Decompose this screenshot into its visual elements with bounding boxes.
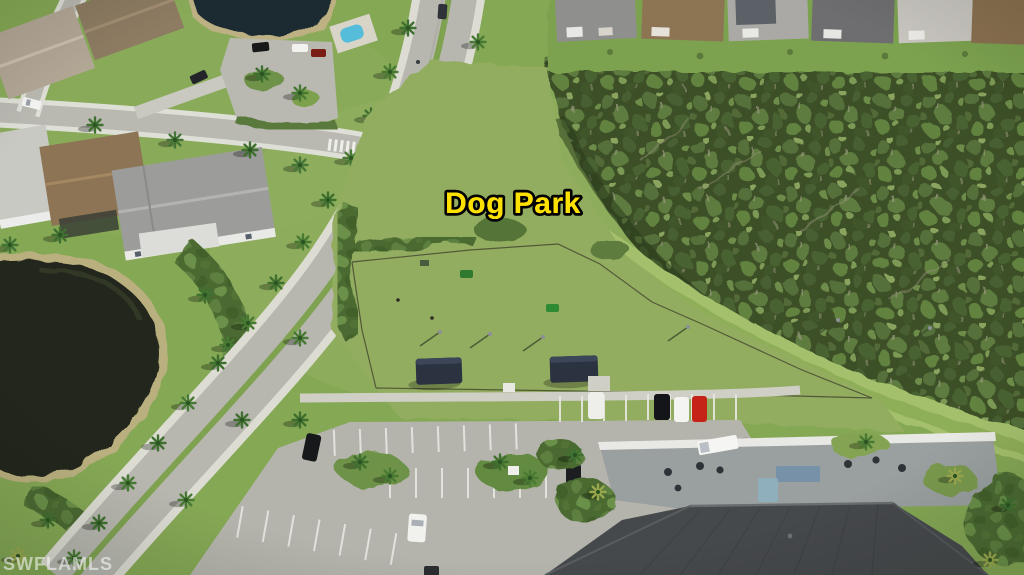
- mls-watermark: SWFLAMLS: [3, 554, 113, 574]
- dog-park-label-fill: Dog Park: [445, 187, 581, 220]
- vignette: [0, 0, 1024, 575]
- aerial-photo: Dog Park Dog Park SWFLAMLS: [0, 0, 1024, 575]
